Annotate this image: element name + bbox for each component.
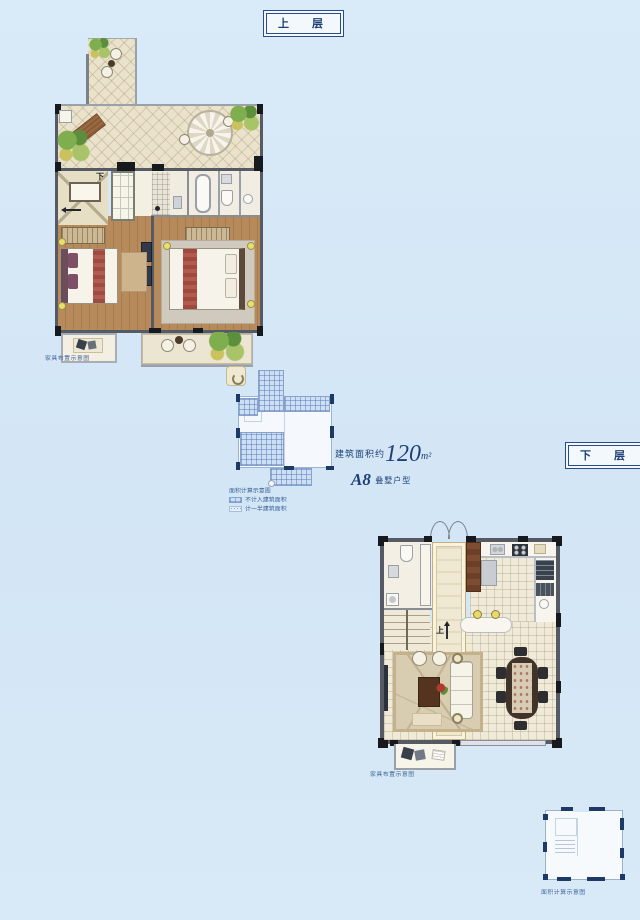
schematic-wall-block xyxy=(620,848,624,858)
partition-wall xyxy=(239,171,241,216)
armchair xyxy=(432,651,447,666)
schematic-door-gap xyxy=(573,809,589,812)
window xyxy=(460,740,546,746)
hatch-area xyxy=(284,396,330,412)
wall-block xyxy=(254,156,263,172)
plant-cluster xyxy=(89,38,111,60)
schematic-wall-block xyxy=(620,818,624,830)
schematic-wall-block xyxy=(236,462,240,470)
toilet xyxy=(400,545,413,562)
hatch-area xyxy=(240,432,284,466)
stair-arrow-head xyxy=(61,207,66,213)
lower-floor-tag: 下 层 xyxy=(565,442,640,469)
terrace-side-table xyxy=(108,60,115,67)
glass-partition xyxy=(111,171,135,221)
cushion xyxy=(87,340,96,349)
dining-chair xyxy=(496,691,506,703)
legend: 面积计算示意图 不计入建筑面积 计一半建筑面积 xyxy=(229,486,294,513)
plant-cluster xyxy=(229,106,261,132)
legend-item-label: 不计入建筑面积 xyxy=(245,495,287,504)
area-line: 建筑面积约120m² xyxy=(335,441,465,468)
side-table xyxy=(452,713,463,724)
bathtub xyxy=(195,174,211,213)
wall-block xyxy=(257,326,263,336)
nightstand-lamp xyxy=(58,238,66,246)
bar-island xyxy=(460,617,512,633)
entry-door-arc xyxy=(448,521,468,539)
counter-item xyxy=(534,544,546,554)
terrace-chair xyxy=(110,48,122,60)
lower-floor-label: 下 层 xyxy=(568,445,640,466)
wall-block xyxy=(556,613,561,627)
vanity-sink xyxy=(221,174,232,184)
schematic-wall-block xyxy=(543,814,548,820)
lower-plan-caption: 家具布置示意图 xyxy=(370,770,415,779)
schematic-wall-block xyxy=(543,842,547,852)
outer-wall-right xyxy=(556,538,560,744)
side-table xyxy=(452,653,463,664)
fridge xyxy=(536,560,554,580)
terrace-wall xyxy=(135,38,137,108)
pillow xyxy=(225,254,237,274)
compass-icon xyxy=(226,366,246,386)
upper-floor-tag: 上 层 xyxy=(263,10,344,37)
appliance xyxy=(536,583,554,596)
dot-hatch-swatch xyxy=(229,506,242,512)
stair-up-label: 上 xyxy=(436,625,444,636)
stair-arrow-head xyxy=(444,621,450,626)
model-code: A8 xyxy=(351,470,371,489)
area-prefix: 建筑面积约 xyxy=(335,449,385,459)
dining-chair xyxy=(514,647,527,656)
armchair xyxy=(412,651,427,666)
area-unit: m² xyxy=(421,451,431,462)
pillow xyxy=(225,278,237,298)
upper-plan-caption: 家具布置示意图 xyxy=(45,354,90,363)
plant-cluster xyxy=(207,332,247,362)
entry-door-arc xyxy=(430,521,450,539)
schematic-partition xyxy=(284,412,285,468)
bedroom-rug xyxy=(121,252,147,292)
stove xyxy=(512,544,528,556)
stair-rail xyxy=(406,610,408,650)
dining-chair xyxy=(538,667,548,679)
dining-chair xyxy=(538,691,548,703)
schematic-wall-block xyxy=(236,428,240,438)
stair-landing xyxy=(69,182,101,202)
bar-stool xyxy=(473,610,482,619)
balcony-chair xyxy=(183,339,196,352)
nightstand-lamp xyxy=(247,242,255,250)
hatch-area xyxy=(258,370,284,412)
hatch-area xyxy=(270,468,312,486)
partition-wall xyxy=(187,171,189,216)
table-runner xyxy=(512,663,532,713)
compass-glyph xyxy=(232,373,244,385)
pillow xyxy=(68,253,78,268)
schematic-stairs xyxy=(555,840,575,856)
terrace-wall xyxy=(86,54,89,108)
legend-item-label: 计一半建筑面积 xyxy=(245,504,287,513)
bath-bench xyxy=(173,196,182,209)
dining-chair xyxy=(514,721,527,730)
schematic-wall-block xyxy=(330,394,334,404)
ottoman xyxy=(412,713,442,726)
kitchen-island-counter xyxy=(481,560,497,586)
appliance-round xyxy=(539,599,549,609)
open-book xyxy=(431,749,445,761)
pillow xyxy=(68,274,78,289)
partition-wall xyxy=(218,171,220,216)
schematic-wall-block xyxy=(284,466,294,470)
lower-floor-plan: 上 xyxy=(378,495,568,779)
flower-arrangement xyxy=(436,683,448,695)
kitchen-sink xyxy=(490,544,505,555)
bath-counter xyxy=(420,544,431,606)
model-suffix: 叠墅户型 xyxy=(375,476,411,485)
tv-unit xyxy=(384,665,388,711)
hatch-area xyxy=(238,398,258,416)
basin xyxy=(243,194,253,204)
schematic-wall-block xyxy=(326,466,334,470)
upper-floor-label: 上 层 xyxy=(266,13,341,34)
parasol-hub xyxy=(206,129,214,137)
area-schematic-upper xyxy=(226,364,338,490)
brochure-page: 上 层 下 xyxy=(0,0,640,920)
schematic-wall-block xyxy=(561,807,573,811)
schematic-room xyxy=(555,818,577,836)
dining-chair xyxy=(496,667,506,679)
nightstand-lamp xyxy=(58,302,66,310)
area-schematic-lower xyxy=(543,806,627,884)
legend-title: 面积计算示意图 xyxy=(229,486,271,495)
stair-arrow xyxy=(446,626,448,639)
terrace-table xyxy=(59,110,72,123)
stair-arrow xyxy=(66,209,81,211)
wardrobe xyxy=(61,227,105,244)
legend-item: 计一半建筑面积 xyxy=(229,504,294,513)
cushion xyxy=(414,749,426,761)
bed-runner xyxy=(183,249,197,309)
model-line: A8 叠墅户型 xyxy=(351,470,465,490)
toilet xyxy=(221,190,233,206)
stair-down-label: 下 xyxy=(96,171,104,182)
outer-wall-right xyxy=(260,106,263,332)
balcony-chair xyxy=(161,339,174,352)
bar-stool xyxy=(491,610,500,619)
washing-machine xyxy=(386,593,399,606)
schematic-wall-block xyxy=(587,877,605,881)
nightstand-lamp xyxy=(247,300,255,308)
plant-cluster xyxy=(57,130,91,164)
summary-block: 建筑面积约120m² A8 叠墅户型 xyxy=(335,441,465,490)
partition-wall xyxy=(151,215,260,217)
balcony-table xyxy=(175,336,183,344)
schematic-wall-block xyxy=(589,807,605,811)
lower-schematic-caption: 面积计算示意图 xyxy=(541,888,586,897)
legend-title-row: 面积计算示意图 xyxy=(229,486,294,495)
schematic-partition xyxy=(577,818,578,856)
schematic-wall-block xyxy=(236,394,240,402)
grid-hatch-swatch xyxy=(229,497,242,503)
legend-item: 不计入建筑面积 xyxy=(229,495,294,504)
area-value: 120 xyxy=(385,441,421,467)
wall-block xyxy=(556,681,561,693)
bed-throw xyxy=(93,249,105,303)
schematic-wall-block xyxy=(620,874,625,880)
sofa xyxy=(450,661,473,719)
terrace-chair xyxy=(179,134,190,145)
hallway xyxy=(135,171,151,216)
shower-drain xyxy=(155,206,160,211)
upper-floor-plan: 下 xyxy=(55,38,267,370)
schematic-wall-block xyxy=(330,426,334,438)
nightstand-lamp xyxy=(163,242,171,250)
terrace-chair xyxy=(101,66,113,78)
schematic-wall-block xyxy=(557,877,571,881)
schematic-wall-block xyxy=(543,874,548,880)
sink xyxy=(388,565,399,578)
pantry-cabinet xyxy=(466,542,481,592)
